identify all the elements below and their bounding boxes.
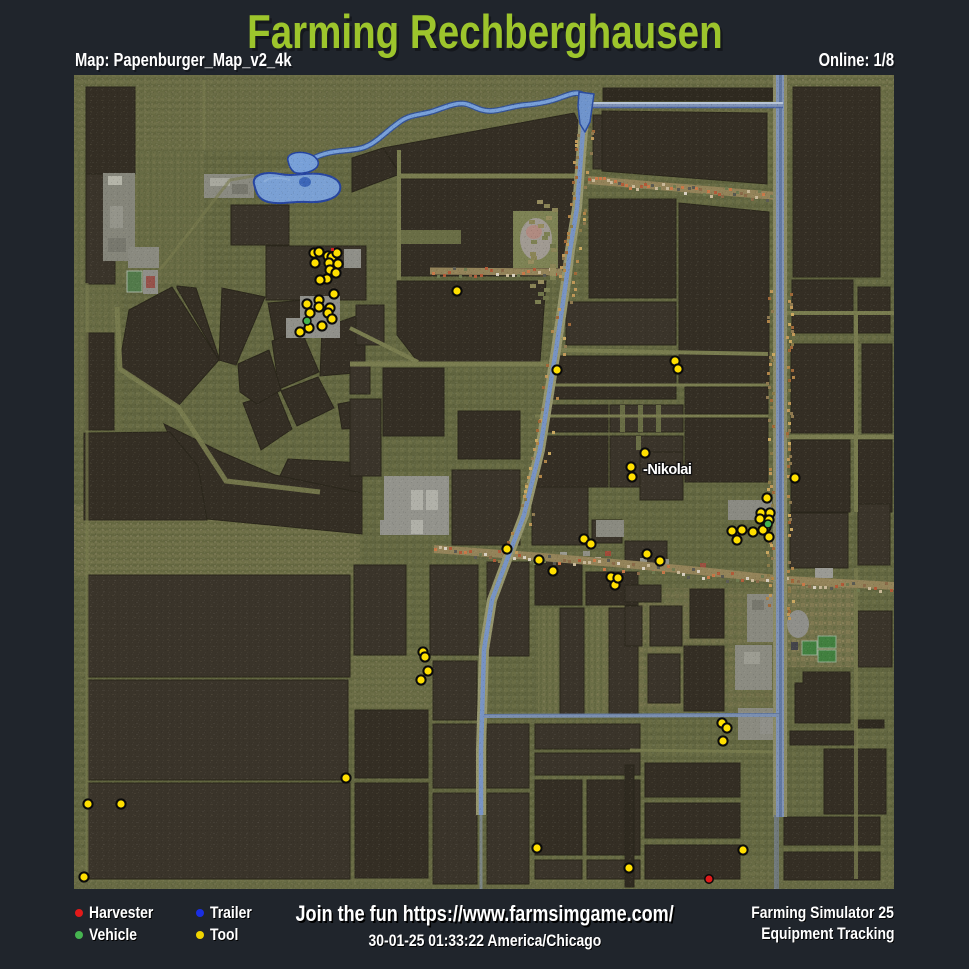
svg-text:-Nikolai: -Nikolai (643, 462, 691, 478)
